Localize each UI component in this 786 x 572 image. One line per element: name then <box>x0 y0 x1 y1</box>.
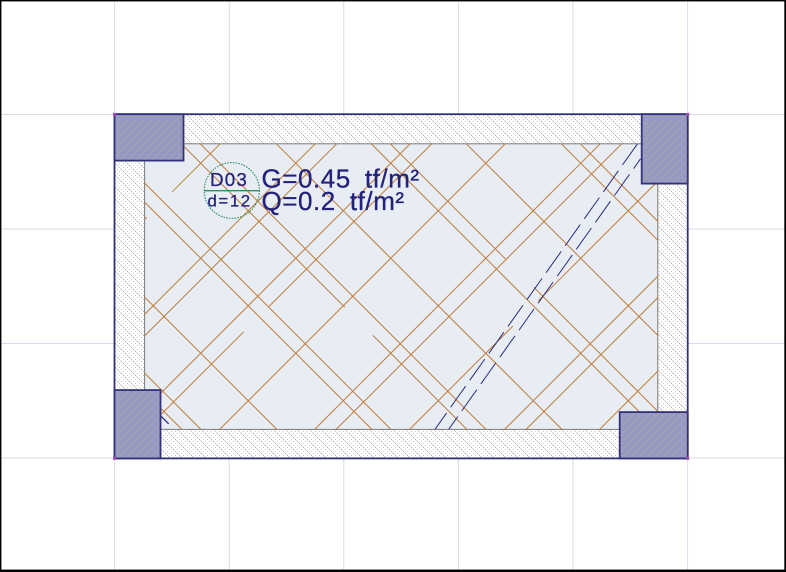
svg-text:d=12: d=12 <box>207 192 251 211</box>
svg-text:D03: D03 <box>210 169 248 190</box>
svg-text:Q=0.2 tf/m²: Q=0.2 tf/m² <box>262 186 405 216</box>
